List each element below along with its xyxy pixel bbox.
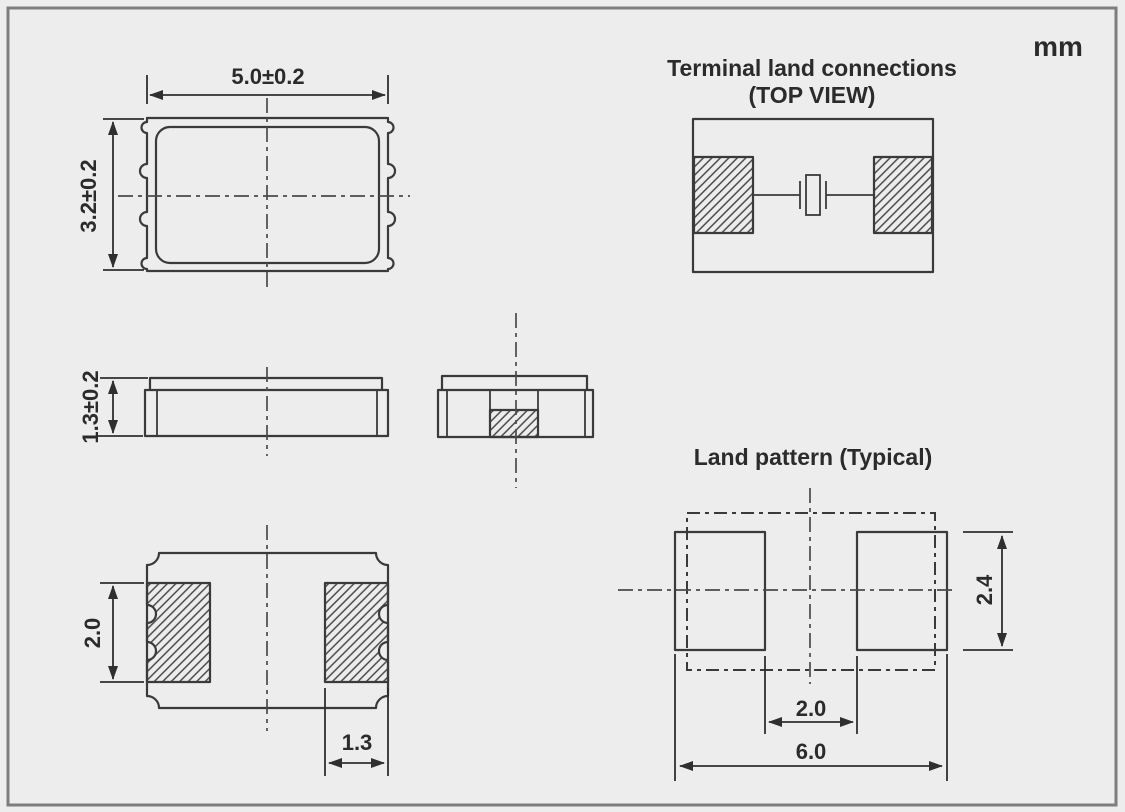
terminal-pad-left: [694, 157, 753, 233]
bottom-terminal-pad-left: [147, 583, 210, 682]
bottom-view-pad-width-dimension: 1.3: [342, 730, 373, 755]
land-pattern-pad-gap-dimension: 2.0: [796, 696, 827, 721]
side-view-thickness-dimension: 1.3±0.2: [78, 370, 103, 443]
land-pattern-title: Land pattern (Typical): [694, 444, 933, 470]
bottom-terminal-pad-right: [325, 583, 388, 682]
land-pattern-overall-width-dimension: 6.0: [796, 739, 827, 764]
unit-label: mm: [1033, 31, 1083, 62]
crystal-element: [806, 175, 820, 215]
terminal-land-connections-subtitle: (TOP VIEW): [749, 82, 876, 108]
package-top-view: 5.0±0.2 3.2±0.2: [76, 64, 410, 292]
terminal-land-connections-title: Terminal land connections: [667, 55, 957, 81]
crystal-symbol: [753, 175, 874, 215]
terminal-cross-section: [490, 410, 538, 437]
crystal-package-dimension-drawing: mm 5.0±0.2 3.2±0.2 1.3±0.2: [0, 0, 1125, 812]
land-pattern-pad-height-dimension: 2.4: [972, 574, 997, 605]
package-bottom-view: 2.0 1.3: [80, 525, 388, 776]
component-outline-dashed: [687, 513, 935, 670]
terminal-pad-right: [874, 157, 932, 233]
land-pad-left: [675, 532, 765, 650]
package-lid-side: [150, 378, 382, 390]
package-side-view: 1.3±0.2: [78, 367, 388, 456]
top-view-height-dimension: 3.2±0.2: [76, 159, 101, 232]
bottom-view-pad-length-dimension: 2.0: [80, 618, 105, 649]
package-end-view: [438, 313, 593, 488]
land-pattern-view: Land pattern (Typical) 2.4 2.0 6.0: [618, 444, 1013, 781]
terminal-land-connections-view: Terminal land connections (TOP VIEW): [667, 55, 957, 272]
top-view-width-dimension: 5.0±0.2: [231, 64, 304, 89]
land-pad-right: [857, 532, 947, 650]
package-lid-end: [442, 376, 587, 390]
